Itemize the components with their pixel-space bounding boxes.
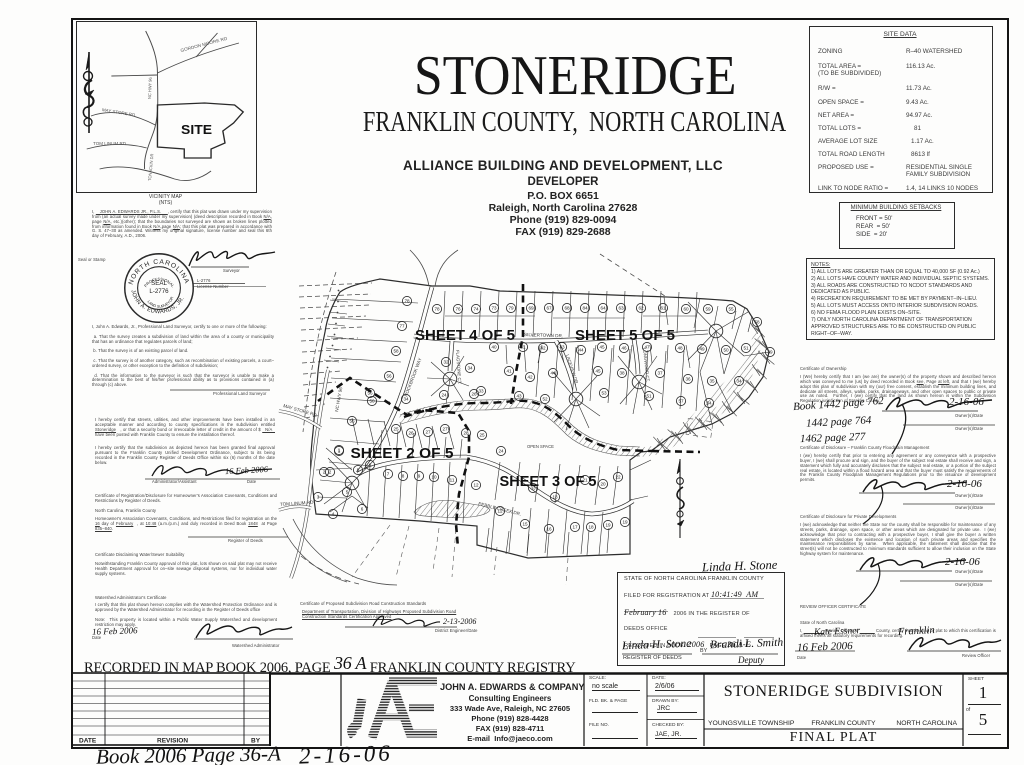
svg-text:19: 19 <box>605 523 611 528</box>
svg-text:57: 57 <box>678 399 684 404</box>
svg-text:12: 12 <box>473 483 479 488</box>
svg-text:SHEET 5 OF 5: SHEET 5 OF 5 <box>575 328 675 344</box>
svg-text:26: 26 <box>408 431 414 436</box>
svg-text:52: 52 <box>542 397 548 402</box>
svg-text:56: 56 <box>367 391 373 396</box>
svg-text:35: 35 <box>709 379 715 384</box>
svg-text:DATE: DATE <box>79 738 97 745</box>
svg-text:42: 42 <box>527 375 533 380</box>
svg-text:60: 60 <box>683 307 689 312</box>
svg-text:27: 27 <box>442 427 448 432</box>
svg-text:36: 36 <box>685 377 691 382</box>
svg-text:78: 78 <box>404 299 410 304</box>
svg-text:41: 41 <box>520 345 526 350</box>
svg-text:46: 46 <box>621 346 627 351</box>
svg-text:45: 45 <box>595 369 601 374</box>
svg-text:43: 43 <box>559 345 565 350</box>
svg-text:SHEET 2 OF 5: SHEET 2 OF 5 <box>351 446 454 462</box>
svg-text:39: 39 <box>767 350 773 355</box>
svg-text:59: 59 <box>705 307 711 312</box>
svg-text:26: 26 <box>471 392 477 397</box>
svg-text:16: 16 <box>546 527 552 532</box>
svg-text:63: 63 <box>618 306 624 311</box>
svg-text:34: 34 <box>736 379 742 384</box>
svg-text:74: 74 <box>473 307 479 312</box>
svg-text:10: 10 <box>431 475 437 480</box>
svg-text:2: 2 <box>323 470 326 475</box>
svg-text:55: 55 <box>728 307 734 312</box>
svg-text:49: 49 <box>699 347 705 352</box>
svg-text:NC HWY 96: NC HWY 96 <box>334 386 343 412</box>
svg-text:69: 69 <box>528 306 534 311</box>
svg-text:25: 25 <box>393 427 399 432</box>
svg-text:34: 34 <box>467 366 473 371</box>
svg-text:Surveyor: Surveyor <box>223 268 240 273</box>
svg-text:20: 20 <box>600 482 606 487</box>
svg-text:58: 58 <box>393 349 399 354</box>
svg-text:68: 68 <box>564 306 570 311</box>
svg-text:1: 1 <box>338 449 341 454</box>
svg-text:50: 50 <box>723 348 729 353</box>
svg-text:27: 27 <box>425 430 431 435</box>
svg-text:11: 11 <box>450 478 455 483</box>
svg-text:44: 44 <box>550 371 556 376</box>
svg-text:15: 15 <box>522 522 528 527</box>
svg-text:41: 41 <box>506 369 512 374</box>
svg-text:L-2776: L-2776 <box>149 288 169 295</box>
svg-text:19: 19 <box>622 520 628 525</box>
svg-text:54: 54 <box>706 401 712 406</box>
svg-text:84: 84 <box>582 306 588 311</box>
svg-text:55: 55 <box>349 419 355 424</box>
svg-text:24: 24 <box>441 393 447 398</box>
svg-text:62: 62 <box>638 306 644 311</box>
svg-text:48: 48 <box>677 346 683 351</box>
svg-text:58: 58 <box>754 320 760 325</box>
svg-text:6: 6 <box>361 507 364 512</box>
svg-text:78: 78 <box>434 307 440 312</box>
svg-text:3: 3 <box>317 495 320 500</box>
svg-text:6: 6 <box>369 463 372 468</box>
svg-text:SHEET 3 OF 5: SHEET 3 OF 5 <box>500 474 597 490</box>
svg-text:53: 53 <box>601 391 607 396</box>
svg-text:7: 7 <box>387 472 390 477</box>
svg-text:SEAL: SEAL <box>151 280 167 287</box>
svg-text:64: 64 <box>600 306 606 311</box>
svg-text:33: 33 <box>478 389 484 394</box>
svg-text:56: 56 <box>386 374 392 379</box>
svg-text:2: 2 <box>329 470 332 475</box>
svg-text:43: 43 <box>516 394 522 399</box>
svg-text:44: 44 <box>578 348 584 353</box>
svg-text:67: 67 <box>546 306 552 311</box>
svg-text:77: 77 <box>399 324 405 329</box>
svg-text:45: 45 <box>599 345 605 350</box>
svg-text:79: 79 <box>508 306 514 311</box>
svg-text:5: 5 <box>346 490 349 495</box>
svg-text:9: 9 <box>418 474 421 479</box>
svg-text:51: 51 <box>646 394 652 399</box>
svg-text:76: 76 <box>455 307 461 312</box>
svg-text:SHEET 4 OF 5: SHEET 4 OF 5 <box>415 328 515 344</box>
svg-text:22: 22 <box>615 475 621 480</box>
svg-text:OPEN SPACE: OPEN SPACE <box>527 444 554 449</box>
svg-text:28: 28 <box>463 431 469 436</box>
svg-text:38: 38 <box>619 371 625 376</box>
svg-text:37: 37 <box>657 371 663 376</box>
svg-text:42: 42 <box>540 346 546 351</box>
svg-text:50: 50 <box>369 399 375 404</box>
svg-text:17: 17 <box>572 525 578 530</box>
svg-text:13: 13 <box>552 495 558 500</box>
svg-text:25: 25 <box>479 433 485 438</box>
svg-text:32: 32 <box>443 360 449 365</box>
svg-text:73: 73 <box>491 306 497 311</box>
svg-text:61: 61 <box>660 306 666 311</box>
svg-text:18: 18 <box>588 525 594 530</box>
svg-text:5: 5 <box>357 468 360 473</box>
svg-text:24: 24 <box>498 449 504 454</box>
svg-text:51: 51 <box>743 346 749 351</box>
svg-text:SILVERTOWN DR.: SILVERTOWN DR. <box>524 332 563 338</box>
svg-text:8: 8 <box>402 474 405 479</box>
svg-text:40: 40 <box>491 345 497 350</box>
svg-text:4: 4 <box>332 512 335 517</box>
